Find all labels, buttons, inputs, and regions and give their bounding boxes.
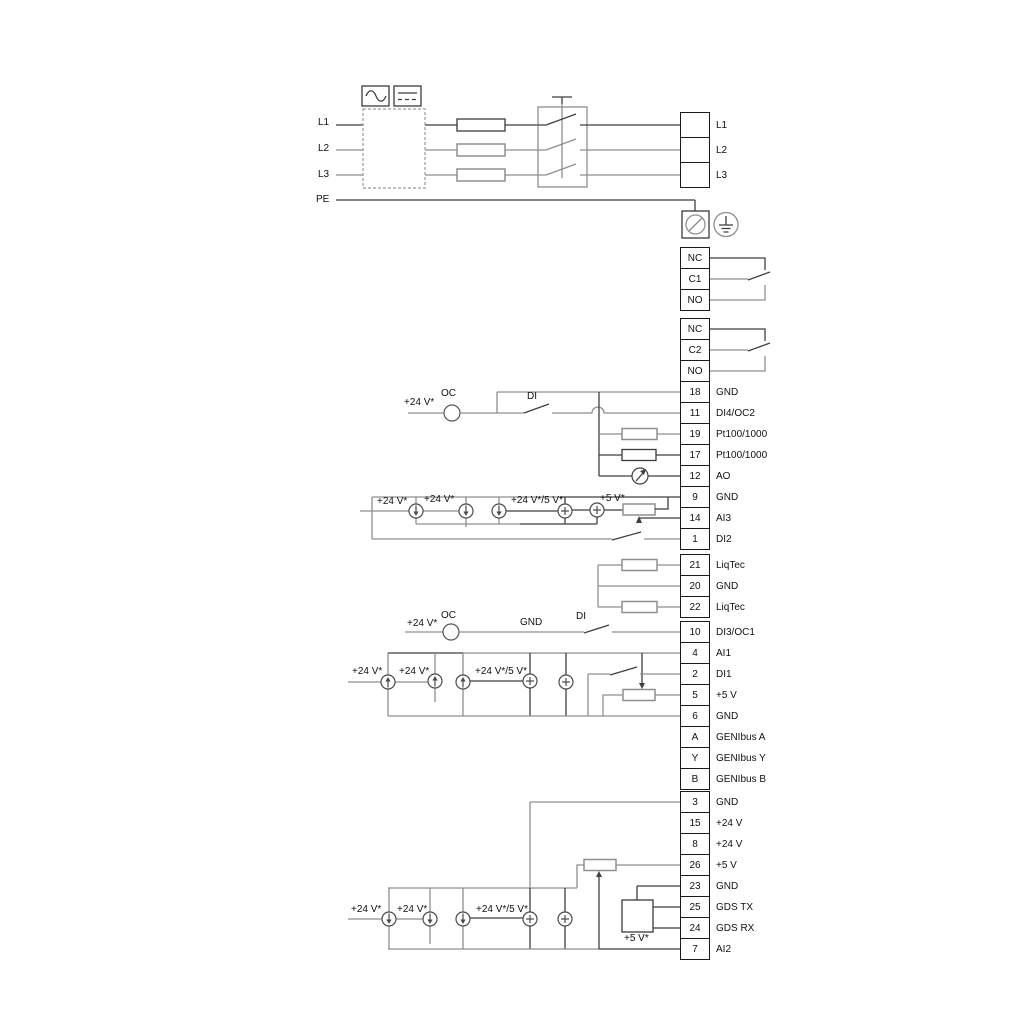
terminal-mains-output-L1	[681, 113, 709, 137]
terminal-io-lower-7: 7	[681, 938, 709, 959]
terminal-label-17: Pt100/1000	[716, 445, 767, 465]
terminal-io-lower-24: 24	[681, 917, 709, 938]
ai1-potentiometer	[623, 690, 655, 701]
current-source-icon	[382, 912, 396, 926]
pt100-resistor-17	[622, 450, 656, 461]
terminal-label-10: DI3/OC1	[716, 622, 755, 642]
label-di4: DI	[527, 391, 537, 403]
terminal-strip-io-middle: 104256AYB	[680, 621, 710, 790]
label-24v5v-ai3: +24 V*/5 V*	[511, 495, 563, 507]
terminal-label-12: AO	[716, 466, 730, 486]
oc-circle-di3	[443, 624, 459, 640]
terminal-io-lower-3: 3	[681, 792, 709, 812]
terminal-label-2: DI1	[716, 664, 732, 684]
oc-circle-di4	[444, 405, 460, 421]
di3-oc1-circuit	[405, 624, 681, 640]
fuse-l1	[457, 119, 505, 131]
terminal-label-L3: L3	[716, 163, 727, 187]
terminal-label-1: DI2	[716, 529, 732, 549]
earth-ground-icon	[714, 213, 738, 237]
terminal-strip-io-lower: 3158262325247	[680, 791, 710, 960]
current-source-icon	[428, 674, 442, 688]
label-24v5v-ai1: +24 V*/5 V*	[475, 666, 527, 678]
terminal-label-3: GND	[716, 792, 738, 812]
terminal-label-9: GND	[716, 487, 738, 507]
ai3-potentiometer	[623, 504, 655, 515]
terminal-io-lower-26: 26	[681, 854, 709, 875]
terminal-label-18: GND	[716, 382, 738, 402]
terminal-strip-relay-1: NCC1NO	[680, 247, 710, 311]
label-24v-ai2-2: +24 V*	[397, 904, 427, 916]
relay2-contact	[709, 329, 770, 371]
fuse-l2	[457, 144, 505, 156]
terminal-strip-mains-output	[680, 112, 710, 188]
terminal-label-14: AI3	[716, 508, 731, 528]
terminal-label-B: GENIbus B	[716, 769, 766, 789]
label-pe-input: PE	[316, 194, 329, 206]
terminal-strip-relay-2: NCC2NO	[680, 318, 710, 382]
wiring-diagram-svg	[0, 0, 1024, 1024]
liqtec-circuit	[598, 560, 681, 613]
terminal-label-22: LiqTec	[716, 597, 745, 617]
terminal-label-20: GND	[716, 576, 738, 596]
pt100-resistor-19	[622, 429, 657, 440]
liqtec-resistor-21	[622, 560, 657, 571]
terminal-mains-output-L3	[681, 162, 709, 187]
terminal-io-lower-23: 23	[681, 875, 709, 896]
terminal-label-23: GND	[716, 876, 738, 896]
label-24v-ai1-1: +24 V*	[352, 666, 382, 678]
terminal-label-Y: GENIbus Y	[716, 748, 766, 768]
pe-wire	[336, 200, 695, 211]
label-24v-oc1: +24 V*	[407, 618, 437, 630]
ao-meter-icon	[599, 468, 681, 484]
terminal-liqtec-20: 20	[681, 575, 709, 596]
terminal-io-middle-Y: Y	[681, 747, 709, 768]
voltage-source-icon	[559, 675, 573, 689]
terminal-io-upper-11: 11	[681, 402, 709, 423]
terminal-io-upper-18: 18	[681, 382, 709, 402]
terminal-io-middle-2: 2	[681, 663, 709, 684]
terminal-io-upper-12: 12	[681, 465, 709, 486]
current-source-icon	[456, 912, 470, 926]
terminal-io-lower-15: 15	[681, 812, 709, 833]
ai2-potentiometer	[584, 860, 616, 871]
label-5v-ai3: +5 V*	[600, 493, 625, 505]
terminal-io-upper-17: 17	[681, 444, 709, 465]
label-24v5v-ai2: +24 V*/5 V*	[476, 904, 528, 916]
label-24v-ai1-2: +24 V*	[399, 666, 429, 678]
terminal-label-11: DI4/OC2	[716, 403, 755, 423]
main-switch	[538, 97, 681, 187]
voltage-source-icon	[558, 912, 572, 926]
terminal-label-15: +24 V	[716, 813, 742, 833]
voltage-source-icon	[590, 503, 604, 517]
terminal-liqtec-22: 22	[681, 596, 709, 617]
terminal-strip-io-upper: 18111917129141	[680, 381, 710, 550]
di3-switch	[584, 625, 609, 633]
terminal-io-upper-1: 1	[681, 528, 709, 549]
terminal-io-lower-8: 8	[681, 833, 709, 854]
terminal-label-19: Pt100/1000	[716, 424, 767, 444]
terminal-io-middle-A: A	[681, 726, 709, 747]
dc-icon	[394, 86, 421, 106]
di4-switch	[524, 404, 549, 413]
screw-terminal-icon	[682, 211, 709, 238]
terminal-relay-2-C2: C2	[681, 339, 709, 360]
liqtec-resistor-22	[622, 602, 657, 613]
current-source-icon	[409, 504, 423, 518]
terminal-mains-output-L2	[681, 137, 709, 162]
terminal-label-26: +5 V	[716, 855, 737, 875]
label-di3: DI	[576, 611, 586, 623]
label-24v-ai3-2: +24 V*	[424, 494, 454, 506]
terminal-relay-1-NO: NO	[681, 289, 709, 310]
terminal-relay-2-NC: NC	[681, 319, 709, 339]
terminal-io-middle-B: B	[681, 768, 709, 789]
filter-box	[363, 109, 425, 188]
current-source-icon	[381, 675, 395, 689]
terminal-label-25: GDS TX	[716, 897, 753, 917]
pt100-resistors	[599, 429, 681, 461]
terminal-io-upper-14: 14	[681, 507, 709, 528]
label-gnd-di3: GND	[520, 617, 542, 629]
terminal-label-6: GND	[716, 706, 738, 726]
terminal-io-middle-5: 5	[681, 684, 709, 705]
terminal-relay-1-C1: C1	[681, 268, 709, 289]
label-l2-input: L2	[318, 143, 329, 155]
fuse-l3	[457, 169, 505, 181]
terminal-label-5: +5 V	[716, 685, 737, 705]
ai1-sensor-options	[348, 653, 681, 716]
terminal-io-middle-4: 4	[681, 642, 709, 663]
label-l1-input: L1	[318, 117, 329, 129]
label-5v-gds: +5 V*	[624, 933, 649, 945]
current-source-icon	[459, 504, 473, 518]
terminal-io-middle-6: 6	[681, 705, 709, 726]
terminal-relay-1-NC: NC	[681, 248, 709, 268]
terminal-label-L2: L2	[716, 138, 727, 162]
label-24v-ai3-1: +24 V*	[377, 496, 407, 508]
terminal-label-A: GENIbus A	[716, 727, 765, 747]
di2-switch	[372, 532, 681, 540]
terminal-liqtec-21: 21	[681, 555, 709, 575]
ac-waveform-icon	[362, 86, 389, 106]
terminal-label-4: AI1	[716, 643, 731, 663]
gds-sensor-box	[622, 900, 653, 932]
gds-sensor	[622, 886, 681, 932]
current-source-icon	[492, 504, 506, 518]
terminal-io-middle-10: 10	[681, 622, 709, 642]
terminal-label-L1: L1	[716, 113, 727, 137]
label-oc2: OC	[441, 388, 456, 400]
terminal-io-upper-9: 9	[681, 486, 709, 507]
mains-wiring	[336, 86, 538, 188]
terminal-strip-liqtec: 212022	[680, 554, 710, 618]
terminal-io-upper-19: 19	[681, 423, 709, 444]
terminal-relay-2-NO: NO	[681, 360, 709, 381]
current-source-icon	[456, 675, 470, 689]
relay1-contact	[709, 258, 770, 300]
wiring-diagram-canvas: L1L2L3NCC1NONCC2NO18111917129141GNDDI4/O…	[0, 0, 1024, 1024]
label-24v-ai2-1: +24 V*	[351, 904, 381, 916]
terminal-label-8: +24 V	[716, 834, 742, 854]
label-oc1: OC	[441, 610, 456, 622]
terminal-io-lower-25: 25	[681, 896, 709, 917]
terminal-label-7: AI2	[716, 939, 731, 959]
label-l3-input: L3	[318, 169, 329, 181]
terminal-label-24: GDS RX	[716, 918, 754, 938]
terminal-label-21: LiqTec	[716, 555, 745, 575]
label-24v-oc2: +24 V*	[404, 397, 434, 409]
